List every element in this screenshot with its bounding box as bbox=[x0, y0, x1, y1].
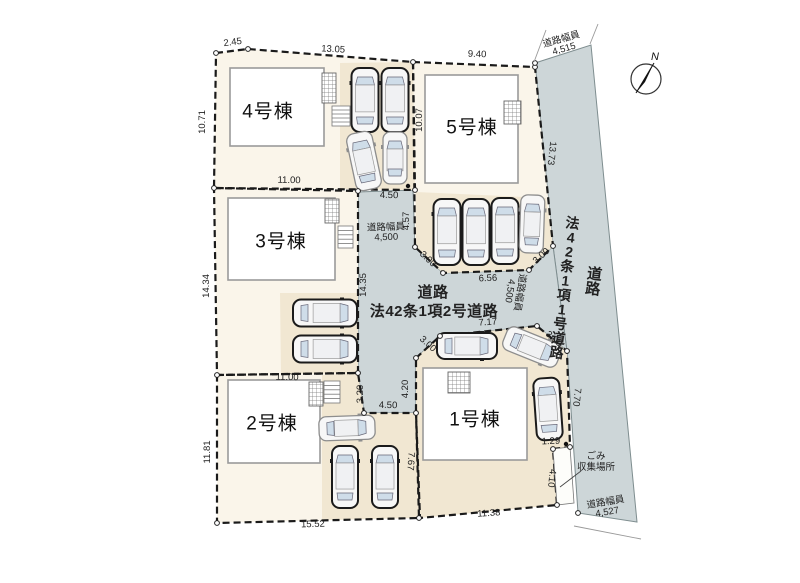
balcony-grid bbox=[448, 372, 470, 393]
dimension-label: 11.00 bbox=[275, 372, 298, 383]
car bbox=[380, 68, 411, 132]
compass-n-label: N bbox=[651, 51, 659, 63]
car bbox=[330, 446, 360, 508]
svg-text:ごみ: ごみ bbox=[586, 450, 605, 462]
svg-text:収集場所: 収集場所 bbox=[577, 461, 616, 473]
dimension-label: 3.20 bbox=[355, 385, 366, 404]
dimension-label: 7.67 bbox=[404, 452, 416, 471]
dimension-label: 11.81 bbox=[202, 440, 213, 463]
dimension-label: 6.56 bbox=[478, 273, 497, 285]
building-label: 3号棟 bbox=[255, 231, 307, 253]
dimension-label: 4.50 bbox=[379, 400, 398, 411]
balcony-grid bbox=[322, 73, 336, 103]
building-label: 2号棟 bbox=[246, 413, 298, 435]
building-5号棟: 5号棟 bbox=[425, 75, 521, 183]
site-plan-page: 1号棟2号棟3号棟4号棟5号棟2.4513.059.4010.7110.0713… bbox=[0, 0, 800, 583]
entrance-steps bbox=[324, 381, 340, 403]
dimension-label: 1.29 bbox=[541, 436, 560, 448]
svg-text:4,500: 4,500 bbox=[374, 232, 398, 244]
building-3号棟: 3号棟 bbox=[228, 198, 353, 280]
car bbox=[531, 377, 565, 441]
dimension-label: 9.40 bbox=[468, 49, 487, 61]
dimension-label: 13.05 bbox=[321, 43, 345, 55]
dimension-label: 4.10 bbox=[545, 468, 558, 488]
dimension-label: 15.52 bbox=[301, 519, 325, 531]
car bbox=[319, 413, 376, 443]
car bbox=[381, 132, 409, 184]
road-center-label: 法42条1項2号道路 bbox=[370, 302, 499, 320]
car bbox=[370, 446, 400, 508]
dimension-label: 14.35 bbox=[358, 273, 369, 297]
car bbox=[293, 334, 357, 365]
dimension-label: 10.07 bbox=[414, 108, 425, 132]
building-1号棟: 1号棟 bbox=[423, 368, 527, 460]
dimension-label: 10.71 bbox=[197, 110, 208, 134]
dimension-label: 2.45 bbox=[223, 36, 243, 49]
car bbox=[517, 195, 547, 254]
dimension-label: 4.20 bbox=[400, 380, 411, 399]
entrance-steps bbox=[338, 226, 353, 248]
building-label: 4号棟 bbox=[242, 101, 294, 123]
building-label: 5号棟 bbox=[446, 117, 498, 139]
car bbox=[490, 198, 521, 264]
balcony-grid bbox=[504, 101, 521, 124]
car bbox=[461, 199, 492, 265]
dimension-label: 7.70 bbox=[570, 387, 583, 407]
dimension-label: 14.34 bbox=[201, 274, 212, 298]
car bbox=[293, 298, 357, 329]
car bbox=[437, 331, 497, 361]
car bbox=[432, 199, 463, 265]
dimension-label: 4.50 bbox=[380, 190, 399, 201]
balcony-grid bbox=[325, 199, 339, 223]
building-label: 1号棟 bbox=[449, 409, 501, 431]
car bbox=[350, 68, 381, 132]
site-plan-canvas: 1号棟2号棟3号棟4号棟5号棟2.4513.059.4010.7110.0713… bbox=[0, 0, 800, 583]
entrance-steps bbox=[332, 106, 350, 126]
balcony-grid bbox=[309, 382, 323, 406]
dimension-label: 11.38 bbox=[477, 507, 501, 520]
road-center-label: 道路 bbox=[417, 283, 449, 301]
dimension-label: 11.00 bbox=[277, 175, 300, 186]
